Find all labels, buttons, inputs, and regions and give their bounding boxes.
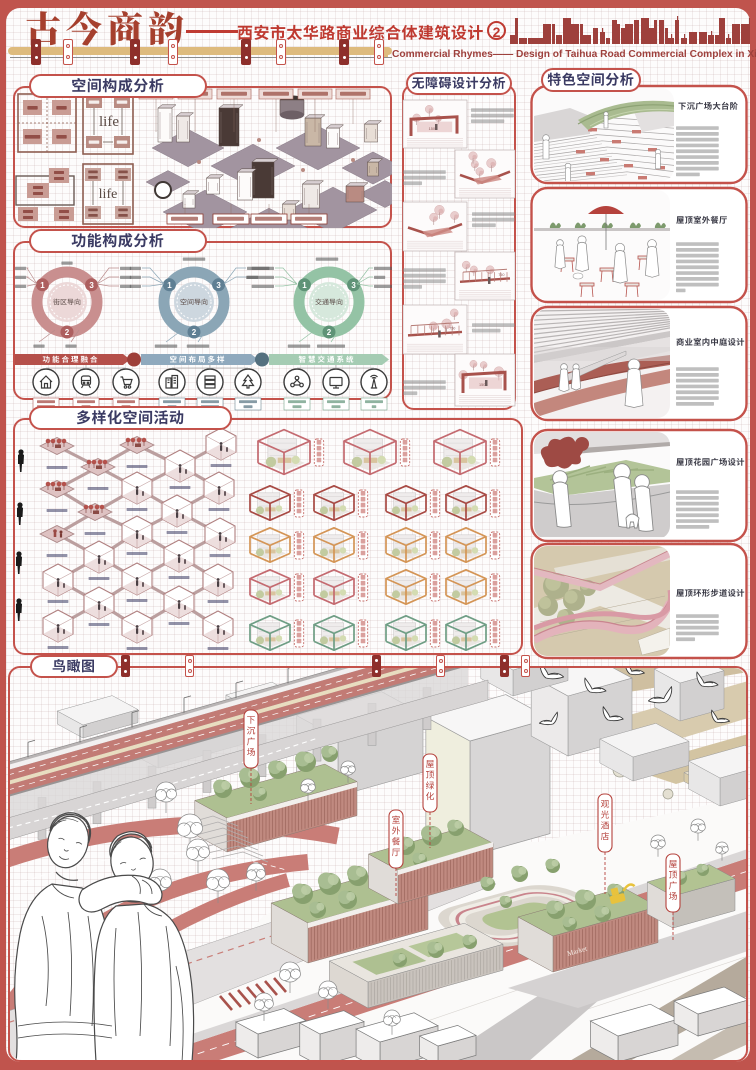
svg-text:2: 2 [65, 328, 70, 337]
svg-text:life: life [99, 187, 118, 202]
svg-text:3: 3 [351, 281, 356, 290]
svg-text:2: 2 [192, 328, 197, 337]
svg-text:life: life [99, 114, 119, 130]
svg-text:750: 750 [449, 327, 455, 331]
svg-text:1: 1 [167, 281, 172, 290]
svg-text:750: 750 [498, 273, 504, 277]
svg-text:3: 3 [216, 281, 221, 290]
svg-text:1: 1 [302, 281, 307, 290]
svg-text:3: 3 [89, 281, 94, 290]
svg-text:1: 1 [40, 281, 45, 290]
svg-text:2: 2 [327, 328, 332, 337]
